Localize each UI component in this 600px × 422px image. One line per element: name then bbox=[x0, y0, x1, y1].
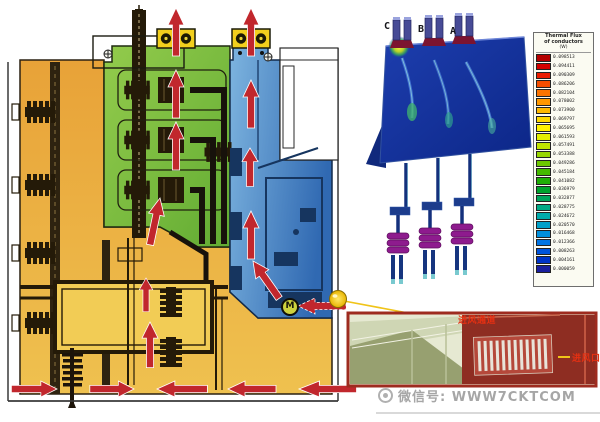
legend-value: 0.004161 bbox=[553, 258, 575, 263]
legend-swatch bbox=[536, 212, 551, 220]
legend-row: 0.049286 bbox=[536, 159, 591, 168]
legend-swatch bbox=[536, 265, 551, 273]
legend-value: 0.065695 bbox=[553, 126, 575, 131]
legend-row: 0.053388 bbox=[536, 150, 591, 159]
legend-value: 0.082104 bbox=[553, 91, 575, 96]
legend-row: 0.065695 bbox=[536, 124, 591, 133]
legend-swatch bbox=[536, 256, 551, 264]
legend-swatch bbox=[536, 54, 551, 62]
legend-value: 0.086206 bbox=[553, 82, 575, 87]
legend-row: 0.069797 bbox=[536, 115, 591, 124]
inlet-label: 进风口 bbox=[572, 351, 600, 364]
cfd-legend-title: Thermal Flux of conductors (W) bbox=[536, 34, 591, 53]
legend-value: 0.041082 bbox=[553, 179, 575, 184]
legend-swatch bbox=[536, 72, 551, 80]
cfd-lower-conductors bbox=[387, 154, 474, 284]
legend-value: 0.028775 bbox=[553, 205, 575, 210]
legend-row: 0.073900 bbox=[536, 106, 591, 115]
watermark-underline bbox=[376, 412, 600, 414]
legend-swatch bbox=[536, 142, 551, 150]
cfd-phase-label-b: B bbox=[418, 24, 424, 35]
legend-row: 0.000059 bbox=[536, 265, 591, 274]
legend-value: 0.073900 bbox=[553, 108, 575, 113]
wechat-logo-icon bbox=[378, 388, 393, 403]
legend-swatch bbox=[536, 63, 551, 71]
highlight-ball bbox=[330, 291, 347, 308]
legend-row: 0.016468 bbox=[536, 229, 591, 238]
legend-row: 0.024672 bbox=[536, 212, 591, 221]
legend-value: 0.012366 bbox=[553, 240, 575, 245]
legend-swatch bbox=[536, 204, 551, 212]
legend-swatch bbox=[536, 239, 551, 247]
legend-row: 0.098513 bbox=[536, 54, 591, 63]
legend-row: 0.032877 bbox=[536, 194, 591, 203]
legend-row: 0.082104 bbox=[536, 89, 591, 98]
watermark: 微信号: WWW7CKTCOM bbox=[378, 386, 600, 405]
cfd-simulation bbox=[366, 13, 531, 284]
legend-row: 0.008263 bbox=[536, 247, 591, 256]
cfd-legend-rows: 0.0985130.0944110.0903090.0862060.082104… bbox=[536, 54, 591, 274]
cabinet-cross-section bbox=[8, 5, 338, 408]
legend-row: 0.045184 bbox=[536, 168, 591, 177]
legend-swatch bbox=[536, 107, 551, 115]
legend-value: 0.053388 bbox=[553, 152, 575, 157]
legend-value: 0.008263 bbox=[553, 249, 575, 254]
legend-swatch bbox=[536, 124, 551, 132]
legend-row: 0.061593 bbox=[536, 133, 591, 142]
legend-row: 0.012366 bbox=[536, 238, 591, 247]
legend-swatch bbox=[536, 151, 551, 159]
legend-value: 0.016468 bbox=[553, 231, 575, 236]
legend-swatch bbox=[536, 160, 551, 168]
legend-value: 0.036979 bbox=[553, 187, 575, 192]
cfd-top-bushings bbox=[390, 13, 476, 48]
legend-value: 0.020570 bbox=[553, 223, 575, 228]
legend-value: 0.061593 bbox=[553, 135, 575, 140]
legend-row: 0.041082 bbox=[536, 177, 591, 186]
legend-value: 0.024672 bbox=[553, 214, 575, 219]
duct-label: 进风通道 bbox=[458, 313, 496, 326]
legend-value: 0.049286 bbox=[553, 161, 575, 166]
legend-value: 0.057491 bbox=[553, 143, 575, 148]
legend-value: 0.000059 bbox=[553, 267, 575, 272]
legend-row: 0.094411 bbox=[536, 62, 591, 71]
legend-swatch bbox=[536, 80, 551, 88]
legend-swatch bbox=[536, 195, 551, 203]
legend-row: 0.028775 bbox=[536, 203, 591, 212]
legend-swatch bbox=[536, 133, 551, 141]
legend-value: 0.090309 bbox=[553, 73, 575, 78]
legend-row: 0.057491 bbox=[536, 141, 591, 150]
fan-motor-badge: M bbox=[284, 301, 296, 311]
cfd-legend: Thermal Flux of conductors (W) 0.0985130… bbox=[533, 32, 594, 287]
legend-row: 0.004161 bbox=[536, 256, 591, 265]
legend-row: 0.086206 bbox=[536, 80, 591, 89]
legend-value: 0.045184 bbox=[553, 170, 575, 175]
legend-swatch bbox=[536, 177, 551, 185]
legend-row: 0.078002 bbox=[536, 97, 591, 106]
cfd-phase-label-c: C bbox=[384, 21, 390, 32]
adjacent-panel-outline bbox=[280, 48, 338, 160]
legend-swatch bbox=[536, 230, 551, 238]
screenshot-canvas: C B A M 进风通道 进风口 Thermal Flux of conduct… bbox=[0, 0, 600, 422]
legend-swatch bbox=[536, 186, 551, 194]
legend-swatch bbox=[536, 248, 551, 256]
legend-row: 0.090309 bbox=[536, 71, 591, 80]
ventilation-diagram-svg bbox=[0, 0, 600, 422]
legend-value: 0.069797 bbox=[553, 117, 575, 122]
legend-swatch bbox=[536, 116, 551, 124]
louver-grille bbox=[473, 335, 552, 376]
watermark-text: 微信号: WWW7CKTCOM bbox=[398, 386, 576, 405]
legend-value: 0.098513 bbox=[553, 55, 575, 60]
legend-swatch bbox=[536, 168, 551, 176]
legend-swatch bbox=[536, 221, 551, 229]
legend-swatch bbox=[536, 98, 551, 106]
legend-value: 0.032877 bbox=[553, 196, 575, 201]
legend-swatch bbox=[536, 89, 551, 97]
legend-value: 0.094411 bbox=[553, 64, 575, 69]
legend-row: 0.036979 bbox=[536, 185, 591, 194]
legend-row: 0.020570 bbox=[536, 221, 591, 230]
cfd-phase-label-a: A bbox=[450, 26, 456, 37]
legend-value: 0.078002 bbox=[553, 99, 575, 104]
